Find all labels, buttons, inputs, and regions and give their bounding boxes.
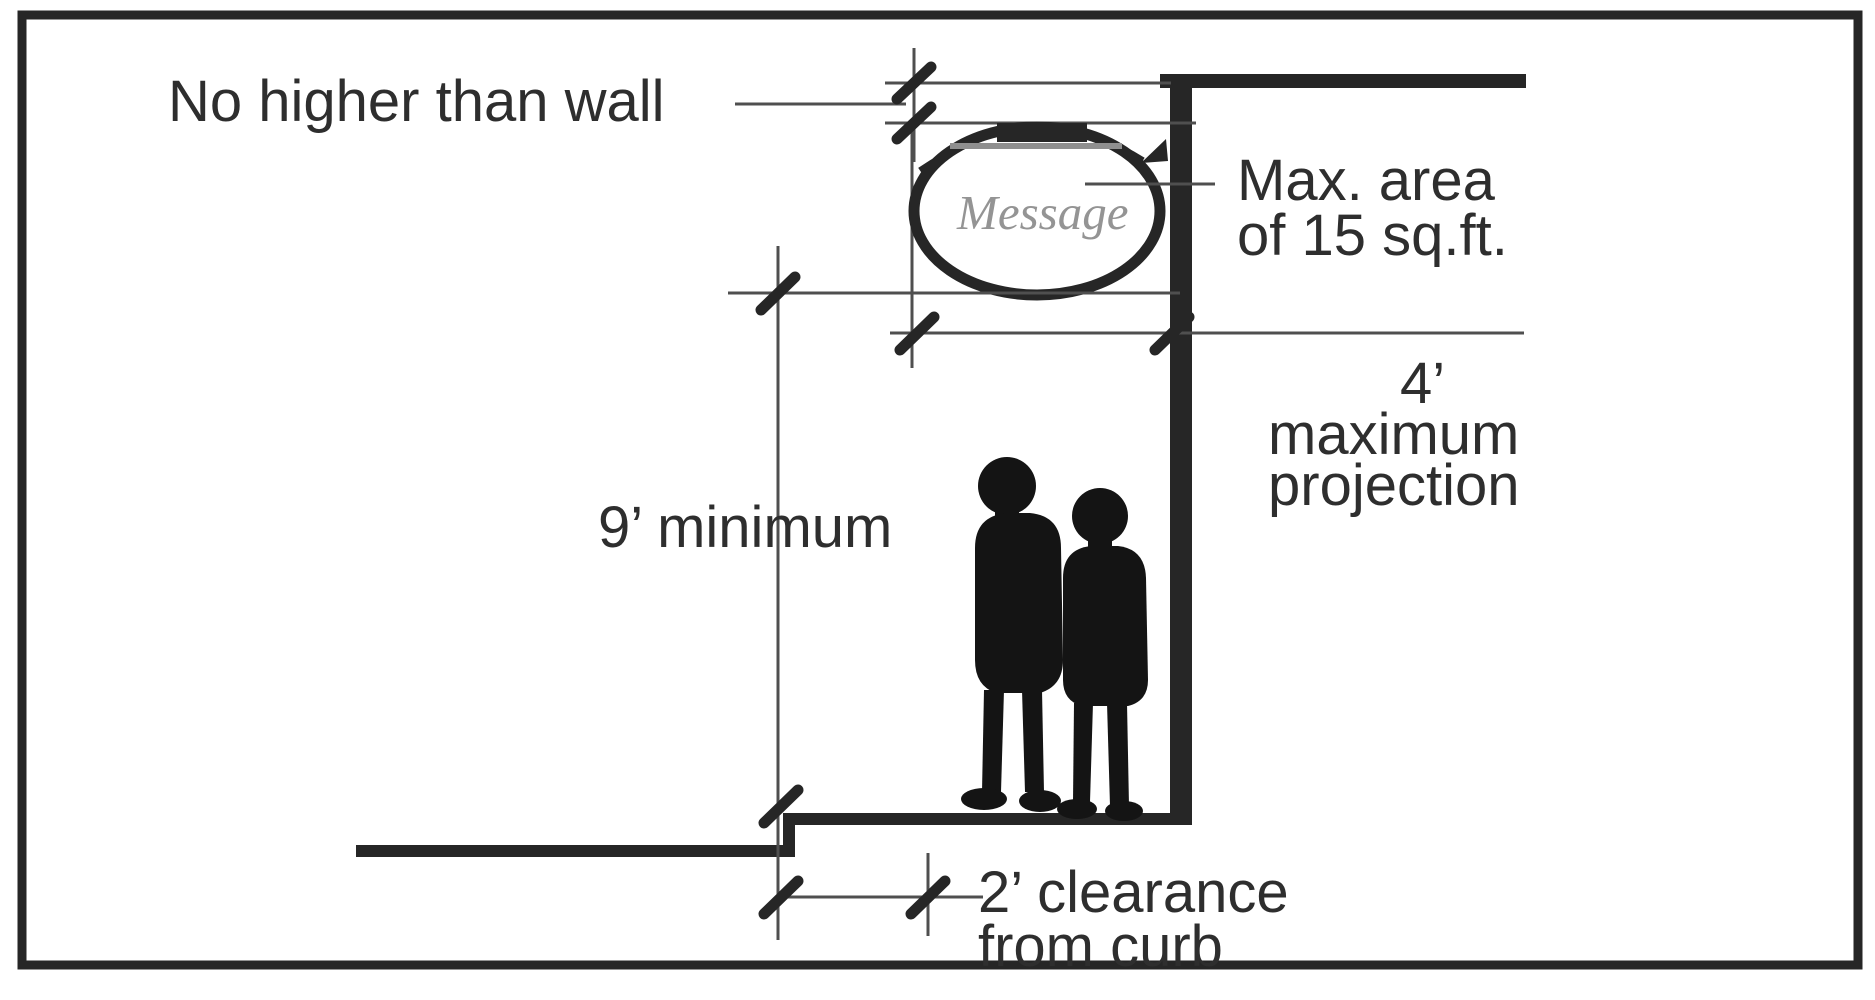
person-left-leg [982, 690, 1004, 792]
sign-message-text: Message [957, 188, 1128, 237]
label-no-higher-than-wall: No higher than wall [168, 74, 665, 129]
label-curb-clearance: 2’ clearance from curb [978, 866, 1289, 974]
sign-mounting-bar [997, 123, 1087, 142]
person-right-leg [1107, 703, 1129, 806]
person-right-foot [1057, 799, 1097, 819]
label-projection-line3: projection [1268, 460, 1519, 511]
label-max-area-line2: of 15 sq.ft. [1237, 208, 1508, 263]
bracket-arrowhead [1141, 139, 1168, 163]
person-right-torso [1063, 546, 1148, 706]
label-max-area-line1: Max. area [1237, 153, 1508, 208]
person-left-leg [1022, 690, 1044, 792]
label-clearance-line1: 2’ clearance [978, 866, 1289, 920]
label-maximum-projection: 4’ maximum projection [1268, 358, 1519, 511]
diagram-drawing [0, 0, 1875, 1000]
label-minimum-height: 9’ minimum [598, 500, 892, 555]
label-clearance-line2: from curb [978, 920, 1289, 974]
person-left-foot [961, 788, 1007, 810]
person-right-leg [1073, 703, 1093, 802]
person-right-foot [1105, 801, 1143, 821]
person-left-foot [1019, 790, 1061, 812]
label-max-area: Max. area of 15 sq.ft. [1237, 153, 1508, 263]
person-left-torso [975, 513, 1063, 693]
sign-regulation-diagram: No higher than wall Max. area of 15 sq.f… [0, 0, 1875, 1000]
pedestrian-silhouettes [961, 457, 1148, 821]
